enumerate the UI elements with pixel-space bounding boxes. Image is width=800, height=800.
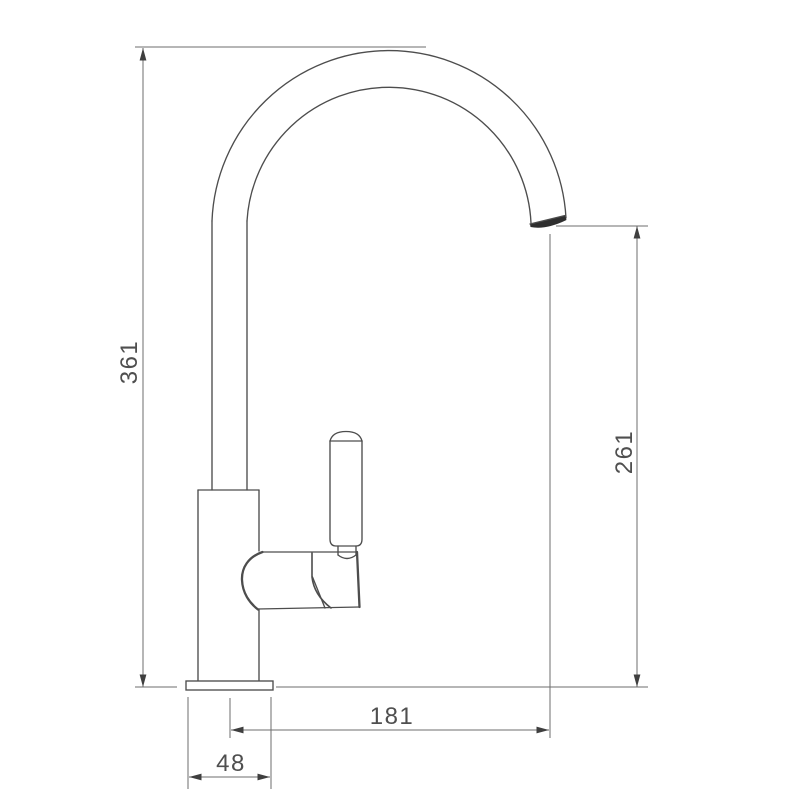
dim-label-overall-height: 361 — [116, 340, 143, 385]
valve-housing-right-edge — [357, 552, 360, 607]
arrowhead-right-spout-reach — [537, 727, 550, 734]
arrowhead-down-outlet-height — [634, 675, 641, 688]
dim-label-outlet-height: 261 — [611, 430, 638, 475]
arrowhead-right-base-width — [258, 774, 271, 781]
tap-outline — [186, 51, 567, 690]
arrowhead-up-outlet-height — [634, 226, 641, 239]
tap-dimension-drawing: 361 261 181 48 — [0, 0, 800, 800]
base-flange-plate — [186, 681, 273, 690]
handle-cap-dome — [330, 432, 362, 442]
dimension-labels: 361 261 181 48 — [116, 340, 638, 777]
arrowhead-up-overall-height — [140, 48, 147, 61]
technical-drawing-sheet: 361 261 181 48 — [0, 0, 800, 800]
arrowhead-down-overall-height — [140, 675, 147, 688]
dim-label-base-width: 48 — [216, 750, 246, 777]
valve-housing-bottom-edge — [258, 607, 360, 609]
handle-neck-bottom-curve — [338, 555, 356, 559]
dim-label-spout-reach: 181 — [370, 703, 415, 730]
handle-body — [330, 441, 362, 546]
arrowhead-left-spout-reach — [231, 727, 244, 734]
valve-housing-left-bulge — [242, 552, 263, 610]
spout-outer-curve — [212, 51, 566, 221]
cartridge-seam-diagonal — [313, 577, 326, 608]
spout-inner-curve — [247, 87, 531, 223]
arrowhead-left-base-width — [189, 774, 202, 781]
